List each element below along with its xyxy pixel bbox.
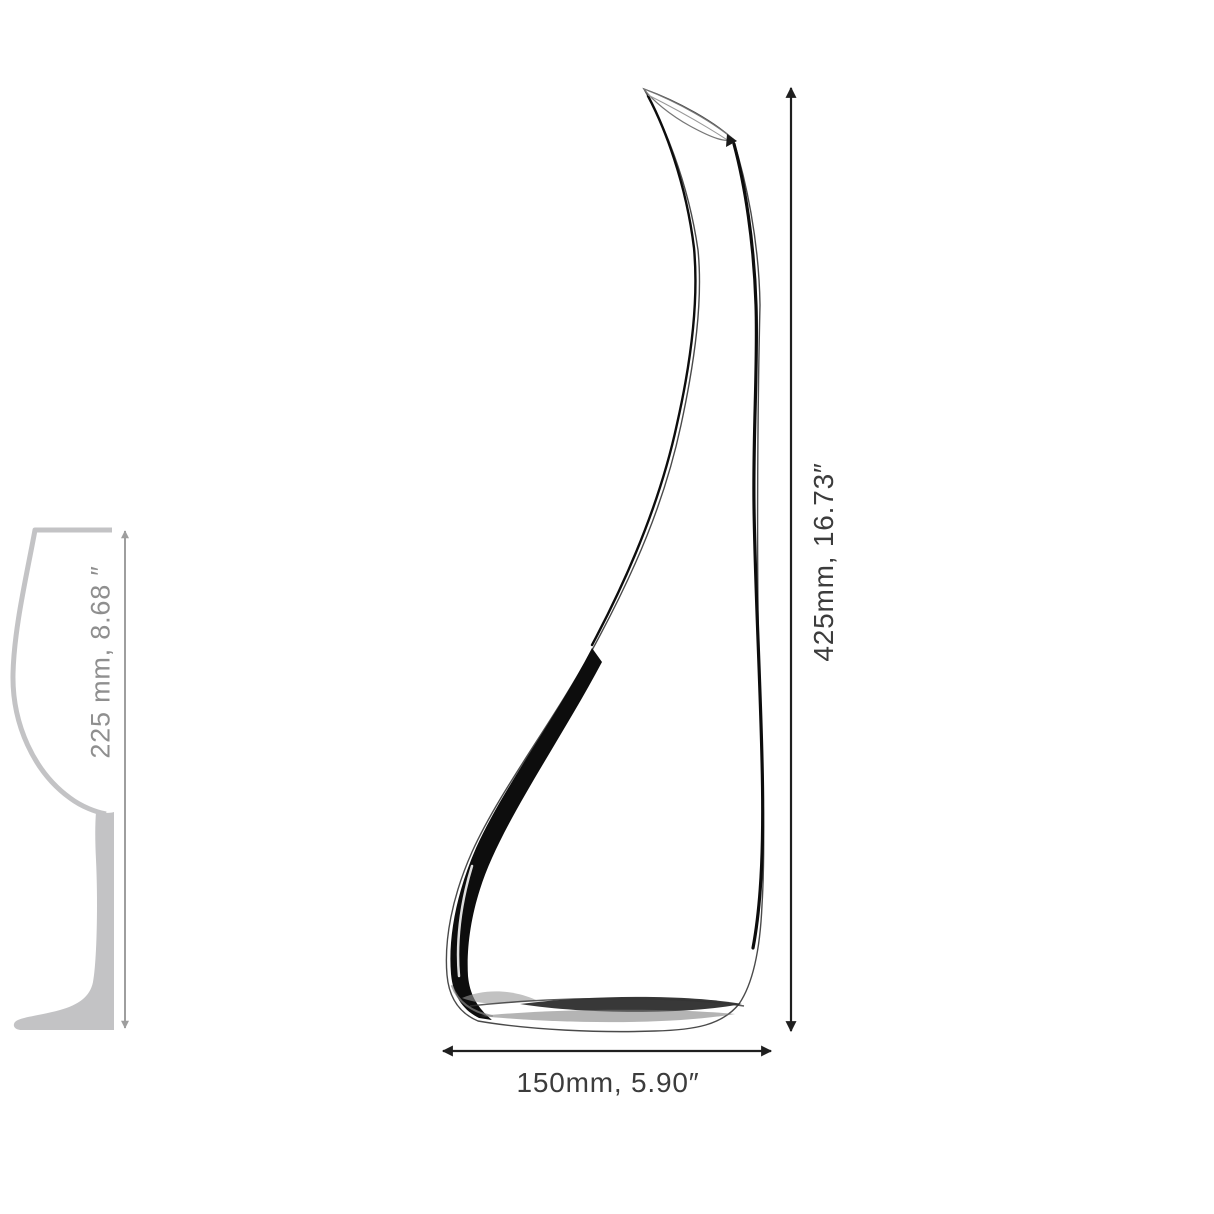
- decanter-width-label: 150mm, 5.90″: [517, 1067, 700, 1099]
- glass-stem-foot: [14, 812, 114, 1030]
- decanter-outline: [446, 89, 763, 1032]
- base-streak-gray: [480, 1010, 735, 1022]
- decanter-left-thick-band: [450, 648, 602, 1020]
- glass-height-label: 225 mm, 8.68 ″: [86, 565, 117, 758]
- decanter-neck-inner-edge: [592, 96, 695, 645]
- diagram-canvas: 225 mm, 8.68 ″ 425mm, 16.73″ 150mm, 5.90…: [0, 0, 1214, 1214]
- decanter-height-label: 425mm, 16.73″: [808, 462, 840, 661]
- decanter-outer-contour: [446, 89, 763, 1032]
- dimension-diagram-svg: [0, 0, 1214, 1214]
